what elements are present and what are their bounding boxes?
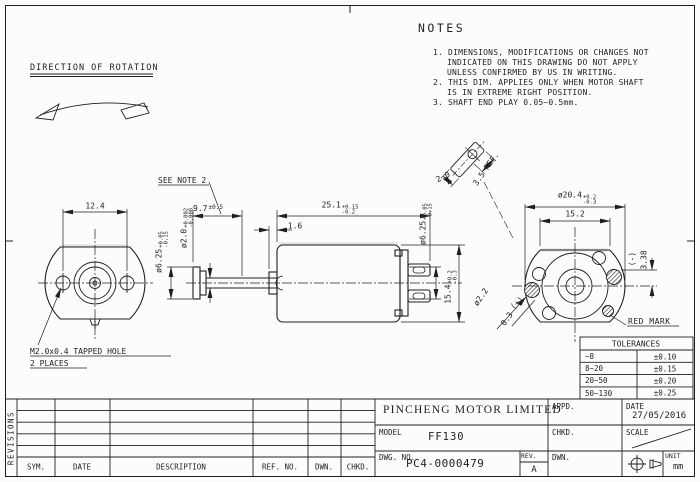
scale-label: SCALE [626, 428, 649, 437]
date-label: DATE [626, 402, 644, 411]
see-note-label: SEE NOTE 2 [158, 176, 206, 185]
note-line-4: 2. THIS DIM. APPLIES ONLY WHEN MOTOR SHA… [433, 78, 644, 87]
model-label: MODEL [379, 428, 402, 437]
drawing-sheet: DIRECTION OF ROTATION SEE NOTE 2 NOTES 1… [0, 0, 700, 482]
revisions-side-label: REVISIONS [7, 411, 16, 465]
dim-hole-spacing: 12.4 [85, 202, 104, 211]
rev-header-description: DESCRIPTION [156, 463, 206, 472]
negative-terminal-label: (-) [628, 252, 637, 266]
dim-front-boss-dia: ø6.25+0.05-0.15 [155, 231, 170, 273]
rotation-arrow-icon [30, 74, 153, 120]
detail-connector-line [484, 182, 514, 240]
tapped-hole-callout-line2: 2 PLACES [30, 359, 69, 368]
appd-label: APPD. [552, 402, 575, 411]
side-view-outline [193, 245, 430, 322]
note-line-6: 3. SHAFT END PLAY 0.05~0.5mm. [433, 98, 578, 107]
tapped-hole-callout-line1: M2.0x0.4 TAPPED HOLE [30, 347, 126, 356]
note-line-5: IS IN EXTREME RIGHT POSITION. [447, 88, 592, 97]
notes-title: NOTES [418, 21, 465, 35]
rev-header-chkd: CHKD. [347, 463, 370, 472]
dim-flat-width: 15.2 [565, 210, 584, 219]
unit-value: mm [673, 462, 683, 472]
rev-header-sym: SYM. [27, 463, 45, 472]
note-line-1: 1. DIMENSIONS, MODIFICATIONS OR CHANGES … [433, 48, 649, 57]
projection-symbol-icon [628, 455, 661, 473]
tolerance-value-3: ±0.20 [654, 377, 677, 386]
dim-shaft-extension: 9.7±0.5 [193, 203, 223, 213]
note-line-3: UNLESS CONFIRMED BY US IN WRITING. [447, 68, 618, 77]
front-view-dims [30, 209, 171, 368]
direction-of-rotation-label: DIRECTION OF ROTATION [30, 64, 158, 73]
tolerance-value-2: ±0.15 [654, 365, 677, 374]
tolerance-range-4: 50~130 [585, 389, 612, 398]
dwn-label: DWN. [552, 453, 570, 462]
tolerance-table-title: TOLERANCES [612, 340, 660, 349]
tolerance-value-4: ±0.25 [654, 389, 677, 398]
red-mark-label: RED MARK [628, 317, 671, 326]
dim-washer: 1.6 [288, 222, 302, 231]
note-line-2: INDICATED ON THIS DRAWING DO NOT APPLY [447, 58, 638, 67]
chkd-label: CHKD. [552, 428, 575, 437]
dim-can-dia: ø20.4+0.2-0.3 [558, 191, 596, 206]
unit-label: UNIT [665, 452, 681, 460]
rear-view-details [525, 252, 622, 320]
dim-shaft-dia: ø2.0+0.002-0.008 [180, 208, 195, 248]
dim-terminal-offset: 3.38 [640, 250, 649, 269]
rev-label: REV. [521, 452, 537, 460]
rev-header-dwn: DWN. [315, 463, 333, 472]
company-name: PINCHENG MOTOR LIMITED [383, 404, 562, 416]
tolerance-value-1: ±0.10 [654, 353, 677, 362]
rev-header-ref-no: REF. NO. [262, 463, 298, 472]
tolerance-range-1: ~8 [585, 352, 594, 361]
tolerance-range-2: 8~20 [585, 364, 603, 373]
date-value: 27/05/2016 [632, 411, 686, 421]
tolerance-range-3: 20~50 [585, 376, 608, 385]
rev-value: A [531, 465, 536, 475]
rear-view-dims [497, 204, 679, 329]
model-value: FF130 [428, 431, 465, 443]
dim-rear-boss-dia: ø6.25+0.05-0.15 [419, 203, 434, 245]
dim-body-height: 15.4+0.2-0.3 [444, 270, 459, 304]
rev-header-date: DATE [73, 463, 91, 472]
dim-body-length: 25.1+0.15-0.2 [322, 201, 359, 216]
dwg-no-value: PC4-0000479 [406, 457, 484, 470]
